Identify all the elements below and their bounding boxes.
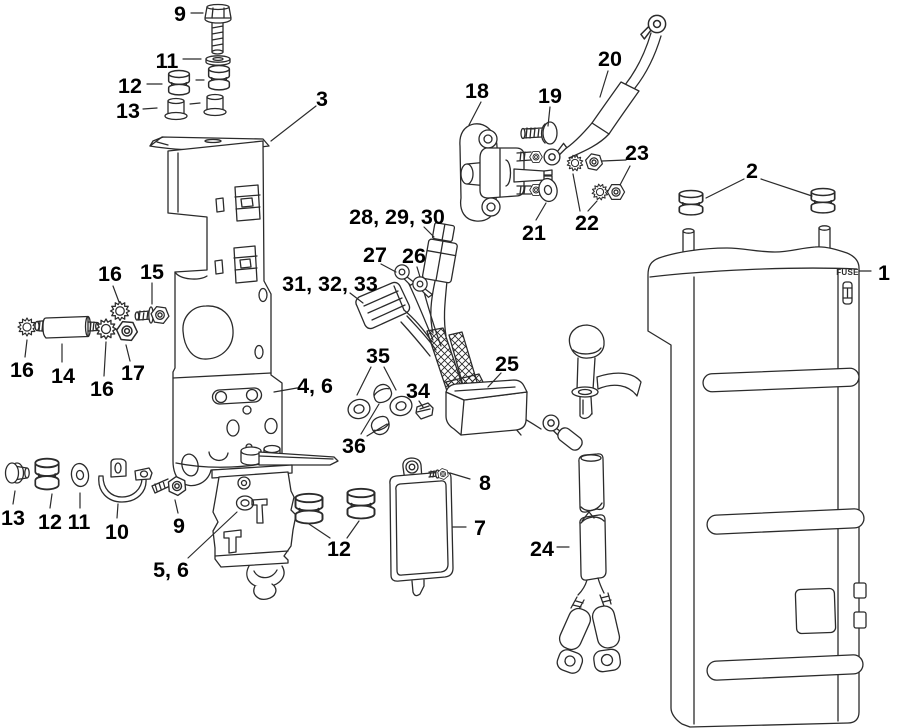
part-12-grommet-bottom xyxy=(35,459,58,490)
callout-9-top[interactable]: 9 xyxy=(174,2,186,26)
part-15-screw xyxy=(135,306,170,324)
callout-27[interactable]: 27 xyxy=(363,243,387,267)
callout-19[interactable]: 19 xyxy=(538,84,562,108)
callout-16-middle[interactable]: 16 xyxy=(90,377,114,401)
part-25-relay xyxy=(446,380,527,435)
callout-5-6[interactable]: 5, 6 xyxy=(153,558,189,582)
callout-28-29-30[interactable]: 28, 29, 30 xyxy=(349,205,445,229)
part-34-clip xyxy=(416,403,433,419)
callout-7[interactable]: 7 xyxy=(474,516,486,540)
callout-25[interactable]: 25 xyxy=(495,352,519,376)
callout-17[interactable]: 17 xyxy=(121,361,145,385)
part-11-washer-top xyxy=(206,56,230,65)
part-1-electrical-cover: FUSE xyxy=(648,226,866,727)
callout-4-6[interactable]: 4, 6 xyxy=(297,374,333,398)
part-13-bushings-top xyxy=(165,95,226,120)
callout-12-middle[interactable]: 12 xyxy=(327,537,351,561)
callout-2[interactable]: 2 xyxy=(746,159,758,183)
callout-23[interactable]: 23 xyxy=(625,141,649,165)
callout-1[interactable]: 1 xyxy=(878,261,890,285)
callout-26[interactable]: 26 xyxy=(402,244,426,268)
callout-9-bottom[interactable]: 9 xyxy=(173,514,185,538)
callout-12-bottom[interactable]: 12 xyxy=(38,510,62,534)
part-12-grommets-middle xyxy=(296,489,375,524)
callout-20[interactable]: 20 xyxy=(598,47,622,71)
callout-18[interactable]: 18 xyxy=(465,79,489,103)
callout-35[interactable]: 35 xyxy=(366,344,390,368)
callout-15[interactable]: 15 xyxy=(140,260,164,284)
part-16-star-washer-upper xyxy=(111,302,130,321)
callout-31-32-33[interactable]: 31, 32, 33 xyxy=(282,272,378,296)
callout-14[interactable]: 14 xyxy=(51,364,75,388)
callout-11-top[interactable]: 11 xyxy=(156,49,179,73)
parts-diagram-page: FUSE xyxy=(0,0,900,728)
callout-8[interactable]: 8 xyxy=(479,471,491,495)
part-9-bolt-top xyxy=(205,5,231,55)
part-2-grommets xyxy=(679,189,834,215)
part-11-washer-bottom xyxy=(70,462,90,487)
part-18-bracket-assembly xyxy=(460,124,552,221)
part-13-bushing-bottom xyxy=(6,463,30,483)
part-19-bolt xyxy=(521,122,557,144)
callout-34[interactable]: 34 xyxy=(406,379,430,403)
callout-13-bottom[interactable]: 13 xyxy=(1,506,25,530)
callout-24[interactable]: 24 xyxy=(530,537,554,561)
part-24-cable-assembly xyxy=(543,325,641,675)
callout-11-bottom[interactable]: 11 xyxy=(68,510,91,534)
callout-21[interactable]: 21 xyxy=(522,221,546,245)
callout-12-top[interactable]: 12 xyxy=(118,74,142,98)
callout-13-top[interactable]: 13 xyxy=(116,99,140,123)
callout-36[interactable]: 36 xyxy=(342,434,366,458)
callout-3[interactable]: 3 xyxy=(316,87,328,111)
callout-10[interactable]: 10 xyxy=(105,520,129,544)
parts-diagram-canvas: FUSE xyxy=(0,0,900,728)
part-3-mounting-bracket xyxy=(150,137,282,486)
fuse-label: FUSE xyxy=(836,268,859,277)
part-5-6-lower-bracket xyxy=(213,472,296,599)
part-10-clamp xyxy=(99,459,152,502)
callout-16-left[interactable]: 16 xyxy=(10,358,34,382)
callout-22[interactable]: 22 xyxy=(575,211,599,235)
callout-16-upper[interactable]: 16 xyxy=(98,262,122,286)
